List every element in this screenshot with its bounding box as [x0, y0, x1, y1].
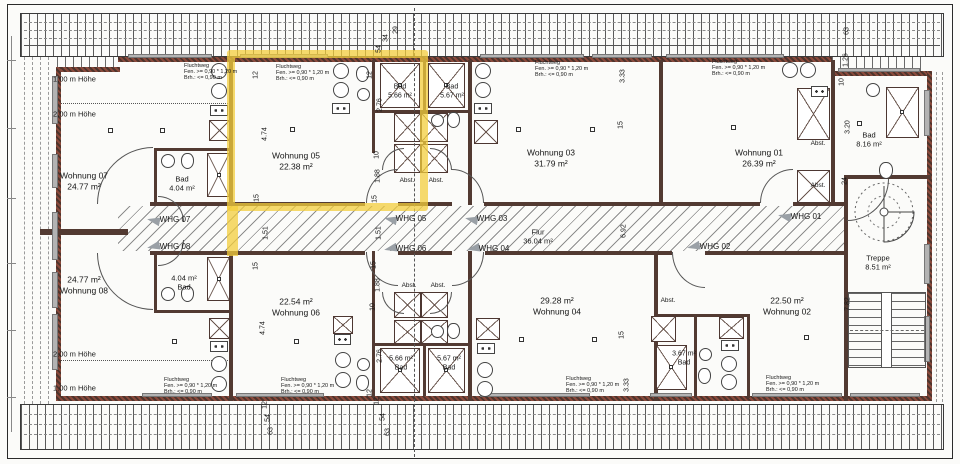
ceiling-symbol: [592, 337, 597, 342]
wall: [154, 310, 232, 313]
drain-symbol: [217, 277, 221, 281]
window: [52, 314, 58, 370]
window: [592, 54, 652, 58]
wohnung-07-label: Wohnung 07 24.77 m²: [60, 170, 108, 191]
spiral-stair: [846, 178, 930, 256]
ceiling-symbol: [294, 339, 299, 344]
dimension-label: 12: [262, 401, 271, 409]
wohnung-02-label: 22.50 m² Wohnung 02: [763, 295, 811, 316]
dimension-label: 54: [376, 45, 385, 53]
toilet-symbol: [447, 323, 460, 339]
window: [480, 54, 584, 58]
shaft-symbol: [474, 120, 498, 144]
sink-symbol: [335, 352, 351, 368]
abstellraum-label: Abst.: [431, 282, 446, 290]
dimension-tick: [7, 198, 16, 199]
wohnung-08-label: 24.77 m² Wohnung 08: [60, 274, 108, 295]
stove-symbol: [210, 341, 228, 352]
wall: [154, 148, 232, 151]
stair-walk-line: [850, 330, 924, 331]
ceiling-symbol: [160, 128, 165, 133]
dimension-label: 54: [380, 413, 389, 421]
abstellraum-label: Abst.: [661, 297, 676, 305]
highlight-overlay-tail: [227, 206, 238, 256]
stove-symbol: [477, 343, 495, 354]
dimension-label: 12: [367, 71, 376, 79]
wohnung-01-label: Wohnung 01 26.39 m²: [735, 147, 783, 168]
abstellraum-label: Abst.: [811, 140, 826, 148]
dimension-label: 15: [371, 261, 380, 269]
dimension-label: 63: [385, 428, 394, 436]
dimension-label: 4.74: [262, 127, 271, 141]
shaft-symbol: [719, 317, 744, 339]
whg-04-door-label: WHG 04: [479, 244, 510, 254]
bad-wohnung-02-label: 3.67 m² Bad: [672, 350, 696, 368]
stove-symbol: [210, 105, 228, 116]
window: [850, 393, 920, 397]
toilet-symbol: [181, 153, 194, 169]
dimension-label: 63: [268, 427, 277, 435]
dimension-label: 2.76: [377, 98, 386, 112]
dimension-label: 3.33: [620, 69, 629, 83]
whg-06-door-label: WHG 06: [396, 244, 427, 254]
dimension-label: 29: [393, 26, 402, 34]
escape-route-note-label: Fluchtweg Fen. >= 0,90 * 1,20 m Brh.: <=…: [184, 63, 237, 81]
wall: [484, 202, 760, 206]
toilet-symbol: [447, 112, 460, 128]
abstellraum-label: Abst.: [400, 177, 415, 185]
dimension-label: 12: [253, 71, 262, 79]
dimension-tick: [7, 128, 16, 129]
dimension-label: 15: [372, 195, 381, 203]
dimension-label: 12: [374, 397, 383, 405]
dimension-label: 1.26: [843, 53, 852, 67]
sink-symbol: [161, 154, 175, 168]
sink-symbol: [475, 82, 491, 98]
dimension-label: 15: [253, 262, 262, 270]
sink-symbol: [721, 356, 737, 372]
dimension-label: 10: [374, 151, 383, 159]
whg-07-door-label: WHG 07: [160, 215, 191, 225]
wohnung-05-label: Wohnung 05 22.38 m²: [272, 150, 320, 171]
dimension-label: 10: [839, 78, 848, 86]
roof-edge-line: [942, 72, 943, 402]
wall: [56, 67, 120, 72]
window: [128, 54, 212, 58]
dimension-label: 6.92: [621, 224, 630, 238]
sink-symbol: [477, 362, 493, 378]
escape-route-note-label: Fluchtweg Fen. >= 0,90 * 1,20 m Brh.: <=…: [535, 60, 588, 78]
closet-symbol: [651, 316, 676, 342]
dimension-label: 1.88: [375, 278, 384, 292]
wall: [423, 345, 426, 396]
ceiling-symbol: [519, 337, 524, 342]
abstellraum-label: Abst.: [811, 182, 826, 190]
height-mark-label: 2,00 m Höhe: [53, 109, 96, 118]
ceiling-symbol: [857, 121, 862, 126]
height-line: [60, 360, 232, 361]
dimension-label: 7.82: [845, 297, 854, 311]
treppe-label: Treppe 8.51 m²: [865, 254, 890, 273]
dimension-label: 24: [842, 177, 851, 185]
sink-symbol: [357, 358, 370, 371]
whg-08-door-label: WHG 08: [160, 242, 191, 252]
dimension-label: 34: [383, 34, 392, 42]
dimension-label: 54: [265, 414, 274, 422]
sink-symbol: [211, 83, 227, 99]
bad-wohnung-06-label: 5.66 m² Bad: [389, 355, 413, 373]
height-mark-label: 2,00 m Höhe: [53, 349, 96, 358]
ceiling-symbol: [804, 335, 809, 340]
flur-label: Flur 36.04 m²: [523, 228, 553, 247]
toilet-symbol: [698, 368, 711, 384]
roof-edge-line: [936, 72, 937, 402]
window: [650, 393, 692, 397]
dimension-label: 63: [844, 27, 853, 35]
window: [924, 90, 930, 136]
wall: [154, 148, 157, 205]
height-line: [60, 103, 232, 104]
window: [666, 54, 784, 58]
wohnung-03-label: Wohnung 03 31.79 m²: [527, 147, 575, 168]
roof-line: [24, 414, 940, 415]
whg-02-door-label: WHG 02: [700, 242, 731, 252]
whg-05-door-label: WHG 05: [396, 214, 427, 224]
sink-symbol: [335, 372, 351, 388]
toilet-symbol: [879, 162, 893, 179]
dimension-tick: [7, 330, 16, 331]
bad-wohnung-08-label: 4.04 m² Bad: [171, 274, 196, 293]
wall: [659, 60, 663, 205]
abstellraum-label: Abst.: [402, 282, 417, 290]
dimension-label: 12: [367, 389, 376, 397]
height-mark-label: 1,00 m Höhe: [53, 383, 96, 392]
wall: [154, 251, 157, 313]
escape-route-note-label: Fluchtweg Fen. >= 0,90 * 1,20 m Brh.: <=…: [766, 375, 819, 393]
stove-symbol: [811, 86, 828, 97]
wall: [747, 316, 750, 398]
roof-edge-line: [32, 57, 33, 404]
dimension-tick: [7, 60, 16, 61]
sink-symbol: [475, 63, 491, 79]
bad-wohnung-03-label: Bad 5.67 m²: [440, 83, 464, 101]
shaft-symbol: [333, 316, 353, 334]
dimension-label: 10: [370, 303, 379, 311]
dimension-label: 15: [619, 331, 628, 339]
roof-line: [24, 38, 940, 39]
roof-line: [24, 424, 940, 425]
dimension-label: 1.51: [263, 226, 272, 240]
sink-symbol: [431, 325, 444, 338]
window: [52, 212, 58, 260]
ceiling-symbol: [516, 127, 521, 132]
roof-line: [24, 434, 940, 435]
roof-line: [24, 22, 940, 23]
stove-symbol: [474, 103, 492, 114]
window: [52, 154, 58, 188]
ceiling-symbol: [731, 125, 736, 130]
roof-hatch-top: [20, 13, 944, 57]
dimension-label: 2.76: [377, 349, 386, 363]
ceiling-symbol: [108, 128, 113, 133]
sink-symbol: [866, 83, 880, 97]
sink-symbol: [782, 62, 798, 78]
escape-route-note-label: Fluchtweg Fen. >= 0,90 * 1,20 m Brh.: <=…: [281, 377, 334, 395]
dimension-tick: [7, 263, 16, 264]
dimension-label: 15: [618, 121, 627, 129]
whg-01-door-label: WHG 01: [791, 212, 822, 222]
floor-plan: Wohnung 07 24.77 m²Bad 4.04 m²Wohnung 05…: [0, 0, 960, 464]
dimension-label: 1.88: [375, 169, 384, 183]
dimension-line: [11, 36, 12, 432]
window: [838, 68, 920, 72]
shaft-symbol: [209, 318, 230, 339]
roof-line: [24, 30, 940, 31]
dimension-label: 3.33: [624, 378, 633, 392]
wall: [831, 60, 835, 205]
window: [752, 393, 842, 397]
bad-wohnung-07-label: Bad 4.04 m²: [169, 175, 194, 194]
roof-line: [24, 45, 940, 46]
closet-symbol: [394, 320, 421, 344]
dimension-label: 4.74: [260, 321, 269, 335]
drain-symbol: [217, 173, 221, 177]
dimension-tick: [7, 397, 16, 398]
dimension-label: 1.51: [376, 226, 385, 240]
escape-route-note-label: Fluchtweg Fen. >= 0,90 * 1,20 m Brh.: <=…: [276, 64, 329, 82]
escape-route-note-label: Fluchtweg Fen. >= 0,90 * 1,20 m Brh.: <=…: [164, 377, 217, 395]
escape-route-note-label: Fluchtweg Fen. >= 0,90 * 1,20 m Brh.: <=…: [712, 59, 765, 77]
sink-symbol: [477, 381, 493, 397]
height-mark-label: 1,00 m Höhe: [53, 74, 96, 83]
sink-symbol: [721, 374, 737, 390]
sink-symbol: [699, 348, 712, 361]
dimension-label: 3.20: [845, 120, 854, 134]
wohnung-04-label: 29.28 m² Wohnung 04: [533, 295, 581, 316]
stove-symbol: [721, 340, 739, 351]
bad-wohnung-05-label: Bad 5.66 m²: [388, 83, 412, 101]
stove-symbol: [334, 334, 351, 345]
sink-symbol: [211, 356, 227, 372]
bad-wohnung-04-label: 5.67 m² Bad: [437, 355, 461, 373]
escape-route-note-label: Fluchtweg Fen. >= 0,90 * 1,20 m Brh.: <=…: [566, 376, 619, 394]
drain-symbol: [900, 110, 904, 114]
wall: [485, 251, 672, 255]
roof-hatch-bottom: [20, 404, 944, 450]
whg-03-door-label: WHG 03: [477, 214, 508, 224]
sink-symbol: [431, 114, 444, 127]
wohnung-06-label: 22.54 m² Wohnung 06: [272, 296, 320, 317]
abstellraum-label: Abst.: [429, 177, 444, 185]
roof-edge-line: [24, 57, 25, 404]
bad-wohnung-01-label: Bad 8.16 m²: [856, 131, 881, 150]
shaft-symbol: [476, 318, 500, 340]
dimension-label: 15: [254, 194, 263, 202]
ceiling-symbol: [590, 127, 595, 132]
ceiling-symbol: [172, 339, 177, 344]
sink-symbol: [800, 62, 816, 78]
window: [52, 272, 58, 308]
